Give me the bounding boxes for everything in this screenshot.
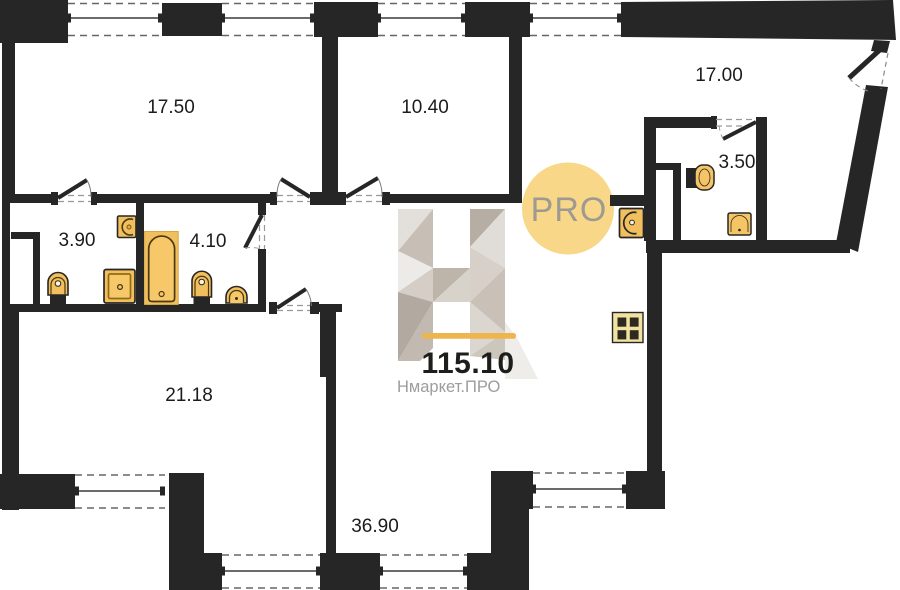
svg-text:115.10: 115.10 — [421, 347, 514, 380]
svg-text:PRO: PRO — [531, 191, 608, 229]
svg-text:21.18: 21.18 — [165, 385, 213, 406]
svg-text:10.40: 10.40 — [401, 97, 449, 118]
svg-text:17.50: 17.50 — [147, 97, 195, 118]
svg-text:17.00: 17.00 — [695, 65, 743, 86]
svg-text:4.10: 4.10 — [190, 231, 227, 252]
svg-text:36.90: 36.90 — [351, 516, 399, 537]
svg-text:3.50: 3.50 — [719, 152, 756, 173]
svg-text:3.90: 3.90 — [59, 230, 96, 251]
svg-text:Нмаркет.ПРО: Нмаркет.ПРО — [397, 378, 500, 396]
